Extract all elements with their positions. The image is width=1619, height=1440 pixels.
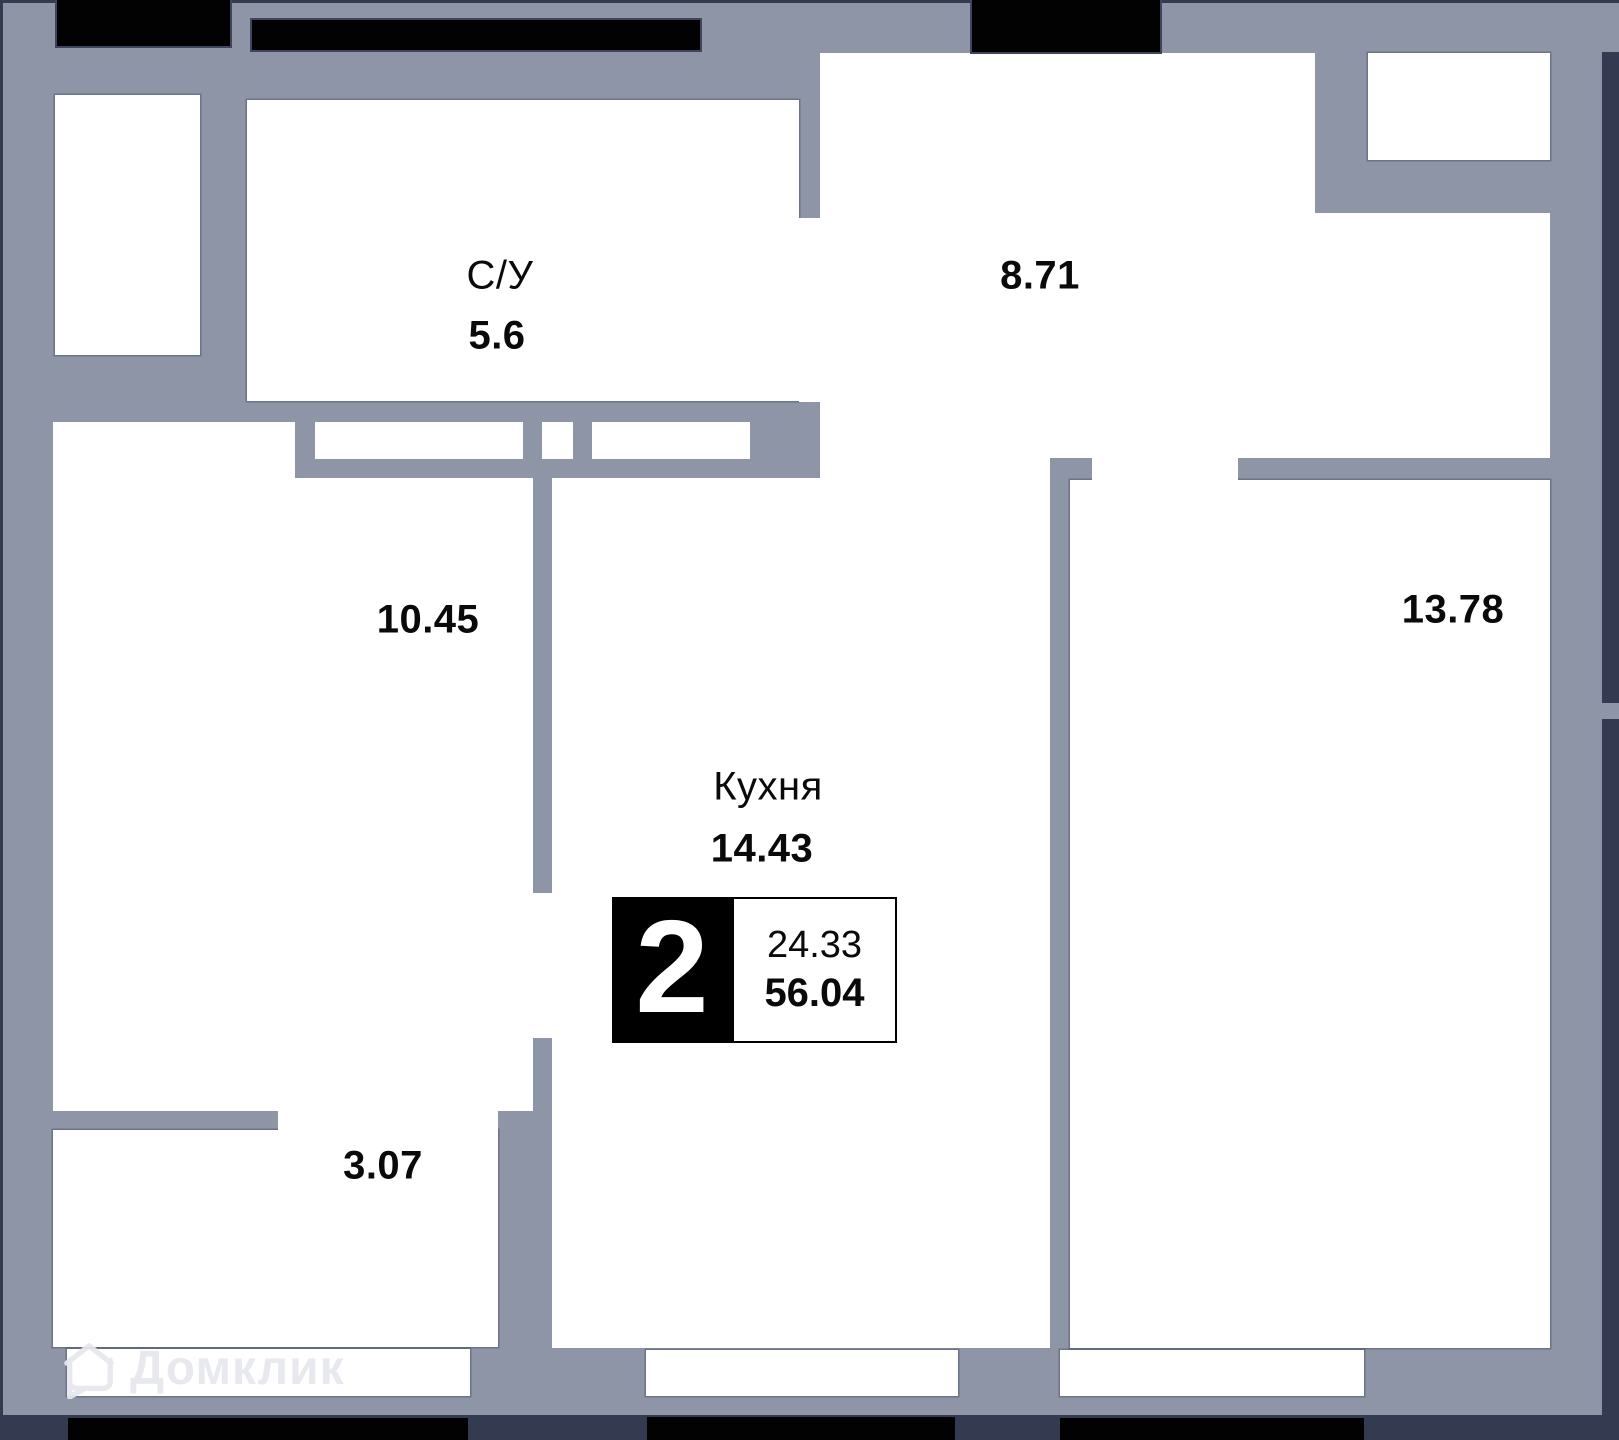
window-band-room-b (1060, 1350, 1364, 1396)
room-10-45 (53, 478, 533, 1111)
badge-living-area: 24.33 (767, 925, 862, 967)
label-kitchen: Кухня (713, 765, 823, 810)
room-10-45-top (53, 422, 295, 478)
window-bar-bottom-3 (1060, 1418, 1364, 1440)
badge-total-area: 56.04 (764, 971, 864, 1015)
area-bathroom: 5.6 (468, 314, 525, 359)
window-bar-top-3 (972, 0, 1160, 52)
wall-cutout-2 (542, 422, 573, 459)
door-gap-kitchen (533, 893, 552, 1038)
area-room-b: 13.78 (1402, 588, 1505, 633)
outer-edge-top (0, 0, 1619, 3)
area-balcony: 3.07 (343, 1144, 423, 1189)
door-gap-bathroom (799, 218, 820, 402)
watermark: Домклик (60, 1335, 345, 1401)
window-bar-top-1 (57, 0, 230, 46)
apartment-badge: 2 24.33 56.04 (612, 897, 897, 1043)
window-band-kitchen (646, 1350, 958, 1396)
window-bar-bottom-1 (68, 1418, 468, 1440)
window-bar-top-2 (252, 20, 700, 50)
badge-areas: 24.33 56.04 (732, 897, 897, 1043)
area-hallway: 8.71 (1000, 254, 1080, 299)
watermark-brand: Домклик (130, 1341, 345, 1396)
area-kitchen: 14.43 (711, 827, 814, 872)
domclick-house-icon (60, 1337, 118, 1399)
wall-tab-right (1602, 703, 1619, 719)
room-hallway-top (820, 53, 1315, 213)
room-hallway-right (1050, 213, 1550, 458)
outer-edge-right (1602, 52, 1619, 1440)
window-bar-bottom-2 (647, 1417, 955, 1440)
floorplan-canvas: С/У 5.6 8.71 10.45 13.78 Кухня 14.43 3.0… (0, 0, 1619, 1440)
room-balcony (53, 1130, 498, 1347)
wall-cutout-3 (592, 422, 750, 459)
outer-edge-left (0, 0, 3, 1415)
window-niche-top-right (1368, 53, 1550, 160)
badge-room-count: 2 (612, 897, 732, 1043)
label-bathroom: С/У (467, 254, 534, 299)
room-niche (55, 95, 200, 355)
area-room-a: 10.45 (377, 598, 480, 643)
wall-cutout-1 (315, 422, 523, 459)
opening-balcony (278, 1111, 498, 1130)
door-gap-13-78 (1092, 458, 1238, 480)
